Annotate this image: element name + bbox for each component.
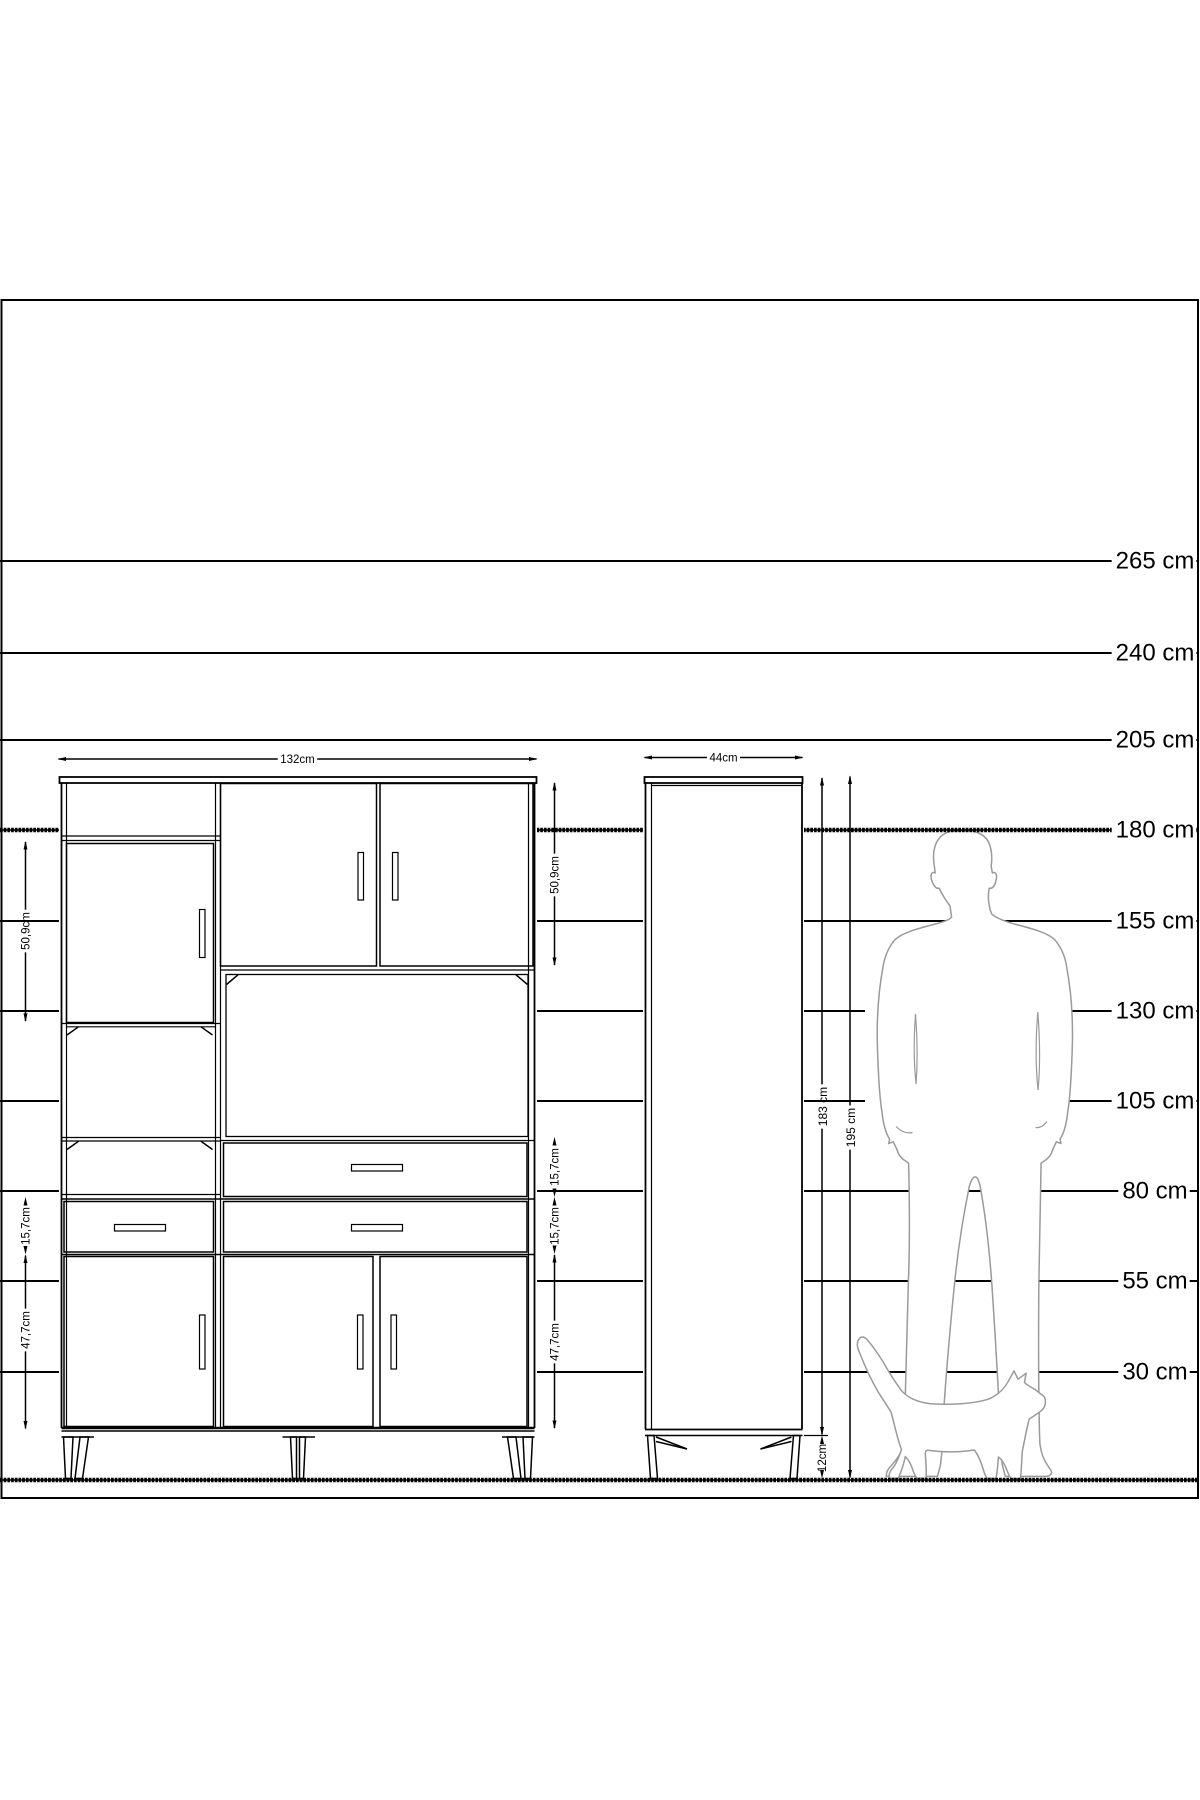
svg-text:105 cm: 105 cm <box>1116 1087 1195 1114</box>
svg-text:205 cm: 205 cm <box>1116 726 1195 753</box>
svg-text:47,7cm: 47,7cm <box>549 1323 561 1361</box>
svg-text:50,9cm: 50,9cm <box>20 912 32 950</box>
svg-text:195 cm: 195 cm <box>844 1108 858 1147</box>
svg-text:155 cm: 155 cm <box>1116 907 1195 934</box>
svg-text:50,9cm: 50,9cm <box>549 856 561 894</box>
svg-text:183 cm: 183 cm <box>816 1087 830 1126</box>
svg-text:132cm: 132cm <box>280 754 315 766</box>
svg-text:47,7cm: 47,7cm <box>20 1311 32 1349</box>
svg-text:80 cm: 80 cm <box>1122 1177 1187 1204</box>
svg-text:130 cm: 130 cm <box>1116 997 1195 1024</box>
svg-text:15,7cm: 15,7cm <box>549 1148 561 1186</box>
svg-text:12cm: 12cm <box>817 1444 829 1472</box>
svg-text:30 cm: 30 cm <box>1122 1358 1187 1385</box>
svg-text:265 cm: 265 cm <box>1116 547 1195 574</box>
svg-text:180 cm: 180 cm <box>1116 816 1195 843</box>
svg-text:240 cm: 240 cm <box>1116 639 1195 666</box>
svg-text:55 cm: 55 cm <box>1122 1267 1187 1294</box>
svg-text:15,7cm: 15,7cm <box>20 1207 32 1245</box>
svg-text:15,7cm: 15,7cm <box>549 1207 561 1245</box>
svg-text:44cm: 44cm <box>709 752 737 764</box>
